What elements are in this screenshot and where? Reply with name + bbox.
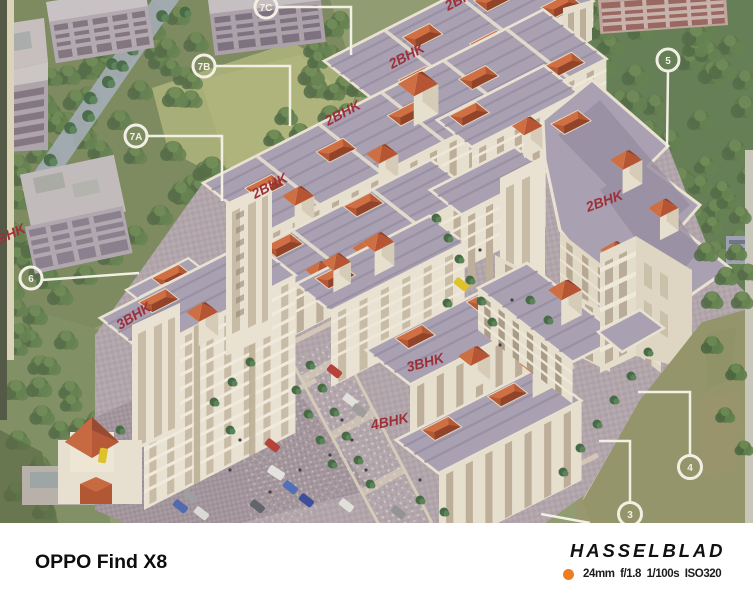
svg-text:7A: 7A <box>130 132 143 143</box>
svg-text:6: 6 <box>28 274 34 285</box>
svg-text:7B: 7B <box>198 62 211 73</box>
svg-text:7C: 7C <box>260 3 273 14</box>
svg-text:4: 4 <box>687 463 693 474</box>
svg-text:5: 5 <box>665 56 671 67</box>
svg-text:3: 3 <box>627 510 633 521</box>
